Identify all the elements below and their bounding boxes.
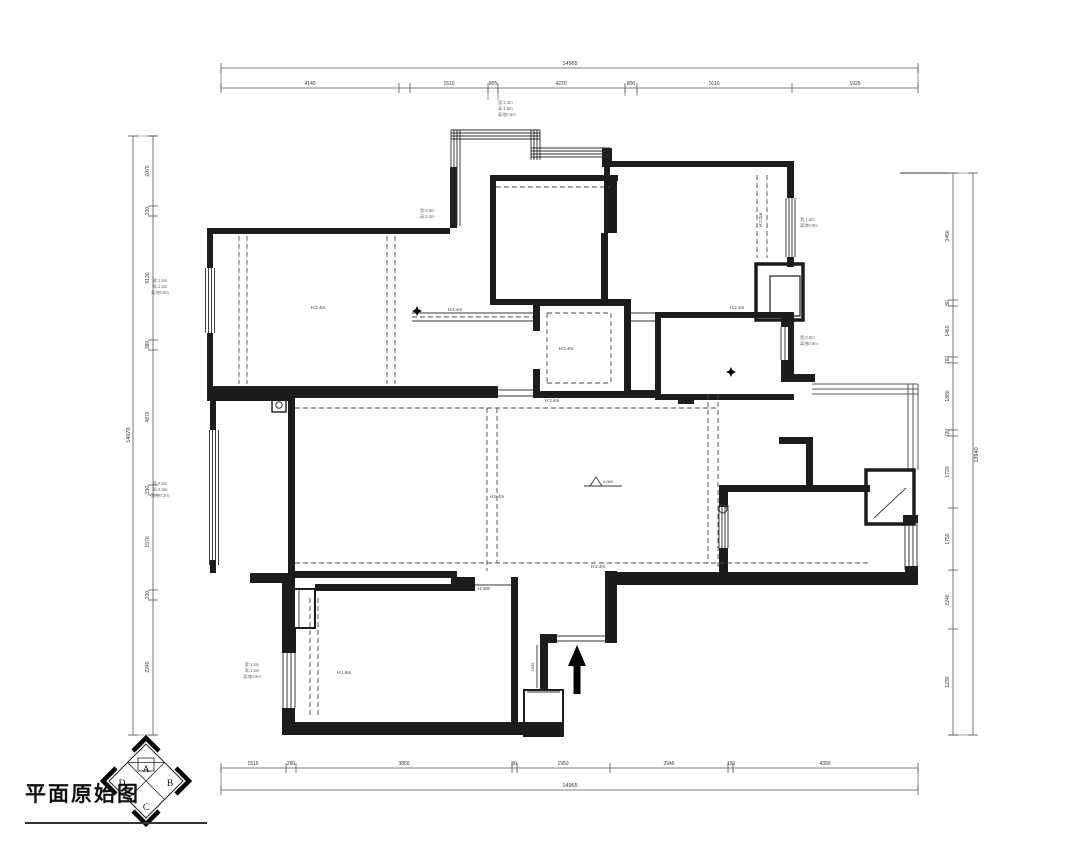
- entry-arrow: [568, 645, 586, 694]
- wall: [604, 161, 794, 167]
- wall: [533, 306, 540, 331]
- dim-right-label: 2240: [945, 594, 951, 605]
- dim-left-total-label: 14070: [126, 427, 132, 442]
- annotation-text: 高:1.5m: [498, 105, 513, 112]
- dim-left-label: 230: [145, 207, 151, 216]
- annotation-text: H:2.4m: [559, 346, 574, 351]
- annotation-text: H:2.4m: [490, 494, 505, 499]
- dim-left-label: 5130: [145, 272, 151, 283]
- wall: [611, 572, 918, 585]
- dim-left-label: 380: [145, 341, 151, 350]
- annotation-text: 离地0.3m: [151, 492, 169, 499]
- wall: [719, 548, 728, 574]
- annotation-text: 宽:1.6m: [800, 216, 815, 223]
- drawing-title: 平面原始图: [25, 783, 140, 806]
- level-text: 0.000: [603, 479, 614, 484]
- dim-left-label: 1570: [145, 536, 151, 547]
- annotation-text: 1635: [530, 662, 535, 672]
- wall: [678, 394, 694, 404]
- dim-top-label: 1510: [443, 81, 454, 87]
- dim-right-label: 80: [945, 300, 951, 306]
- wall: [207, 333, 213, 386]
- dim-top-label: 1925: [849, 81, 860, 87]
- annotation-text: 离地0.5m: [151, 289, 169, 296]
- annotation-text: H:1.8m: [337, 670, 352, 675]
- dim-top-label: 805: [489, 81, 498, 87]
- pivot-circle: [276, 402, 282, 408]
- dim-right-label: 160: [945, 356, 951, 365]
- dim-top-label: 4140: [304, 81, 315, 87]
- wall: [601, 233, 608, 299]
- annotation-text: H:2.4m: [311, 305, 326, 310]
- annotation-text: 宽:0.9m: [420, 207, 435, 214]
- annotation-text: 宽:2.4m: [498, 99, 513, 106]
- dim-bottom-label: 80: [511, 761, 517, 767]
- wall: [631, 390, 657, 398]
- annotation-text: 高:1.5m: [153, 283, 168, 290]
- wall: [490, 299, 539, 305]
- wall: [655, 394, 794, 400]
- dim-right-label: 1750: [945, 533, 951, 544]
- annotation-text: H:2.4m: [448, 307, 463, 312]
- wall: [284, 628, 296, 653]
- dim-right-label: 1880: [945, 390, 951, 401]
- dim-bottom-label: 120: [727, 761, 736, 767]
- annotation-text: 离地0.9m: [498, 111, 516, 118]
- dim-top-label: 800: [627, 81, 636, 87]
- dim-right-label: 120: [945, 429, 951, 438]
- annotation-text: H:2.2m: [758, 213, 763, 228]
- wall: [282, 722, 563, 735]
- wall: [490, 175, 618, 181]
- wall: [540, 643, 548, 690]
- wall: [288, 571, 457, 578]
- wall: [540, 634, 557, 643]
- wall: [728, 485, 870, 492]
- level-marker: [590, 477, 602, 486]
- outline-box: [756, 264, 803, 320]
- wall: [533, 369, 540, 391]
- dim-bottom-label: 1510: [247, 761, 258, 767]
- dim-bottom-label: 1950: [557, 761, 568, 767]
- wall: [315, 584, 475, 591]
- wall: [207, 228, 450, 234]
- dim-right-label: 1720: [945, 466, 951, 477]
- dim-left-label: 2240: [145, 661, 151, 672]
- annotation-text: 宽:0.9m: [800, 334, 815, 341]
- annotation-text: 离地0.9m: [800, 340, 818, 347]
- dim-bottom-label: 4350: [819, 761, 830, 767]
- wall: [719, 485, 728, 507]
- star-symbol: [412, 306, 422, 316]
- wall: [604, 167, 610, 233]
- annotation-text: H:2.4m: [591, 564, 606, 569]
- annotation-text: H:400: [478, 586, 491, 591]
- wall: [207, 395, 292, 401]
- annotation-text: 宽:1.5m: [153, 277, 168, 284]
- wall: [905, 566, 918, 574]
- dim-left-label: 330: [145, 486, 151, 495]
- wall: [779, 437, 813, 444]
- annotation-text: 高:2.0m: [420, 213, 435, 220]
- wall: [490, 181, 496, 299]
- floor-plan-canvas: 0.000H:2.4mH:2.4mH:2.2mH:2.4mH:2.4mH:2.4…: [0, 0, 1080, 864]
- wall: [806, 440, 813, 486]
- dim-right-label: 3450: [945, 230, 951, 241]
- dim-left-label: 4870: [145, 411, 151, 422]
- annotation-text: 850: [540, 686, 547, 691]
- wall: [610, 175, 617, 233]
- compass-letter-A: A: [143, 765, 150, 775]
- wall: [781, 374, 815, 382]
- star-symbol: [726, 367, 736, 377]
- floorplan-page: 0.000H:2.4mH:2.4mH:2.2mH:2.4mH:2.4mH:2.4…: [0, 0, 1080, 864]
- dim-top-label: 1610: [708, 81, 719, 87]
- wall: [624, 306, 631, 391]
- annotation-text: H:2.4m: [730, 305, 745, 310]
- annotation-text: H:2.4m: [545, 398, 560, 403]
- wall: [282, 708, 295, 722]
- dim-right-label: 1460: [945, 325, 951, 336]
- wall: [655, 318, 661, 400]
- dim-top-total-label: 14965: [562, 61, 577, 67]
- wall: [787, 167, 794, 198]
- wall: [533, 391, 631, 398]
- annotation-text: 宽:1.5m: [245, 661, 260, 668]
- wall: [533, 299, 631, 306]
- dim-bottom-label: 3850: [398, 761, 409, 767]
- thin-line: [874, 488, 906, 518]
- annotation-text: 离地0.9m: [800, 222, 818, 229]
- dim-bottom-total-label: 14965: [562, 783, 577, 789]
- dim-bottom-label: 260: [287, 761, 296, 767]
- outline-box: [770, 276, 800, 316]
- dim-bottom-label: 2940: [663, 761, 674, 767]
- annotation-text: 离地0.9m: [243, 673, 261, 680]
- title-block: 平面原始图: [25, 778, 207, 824]
- wall: [511, 577, 518, 724]
- annotation-text: 高:2.0m: [153, 486, 168, 493]
- annotation-text: 高:1.5m: [245, 667, 260, 674]
- wall: [207, 234, 213, 268]
- dim-top-label: 4220: [555, 81, 566, 87]
- wall: [288, 398, 295, 573]
- dim-right-label: 1230: [945, 676, 951, 687]
- wall: [655, 312, 794, 318]
- dim-left-label: 230: [145, 591, 151, 600]
- dim-right-total-label: 13940: [974, 447, 980, 462]
- annotation-text: 宽:2.6m: [153, 480, 168, 487]
- dim-left-label: 2070: [145, 165, 151, 176]
- wall: [210, 401, 216, 430]
